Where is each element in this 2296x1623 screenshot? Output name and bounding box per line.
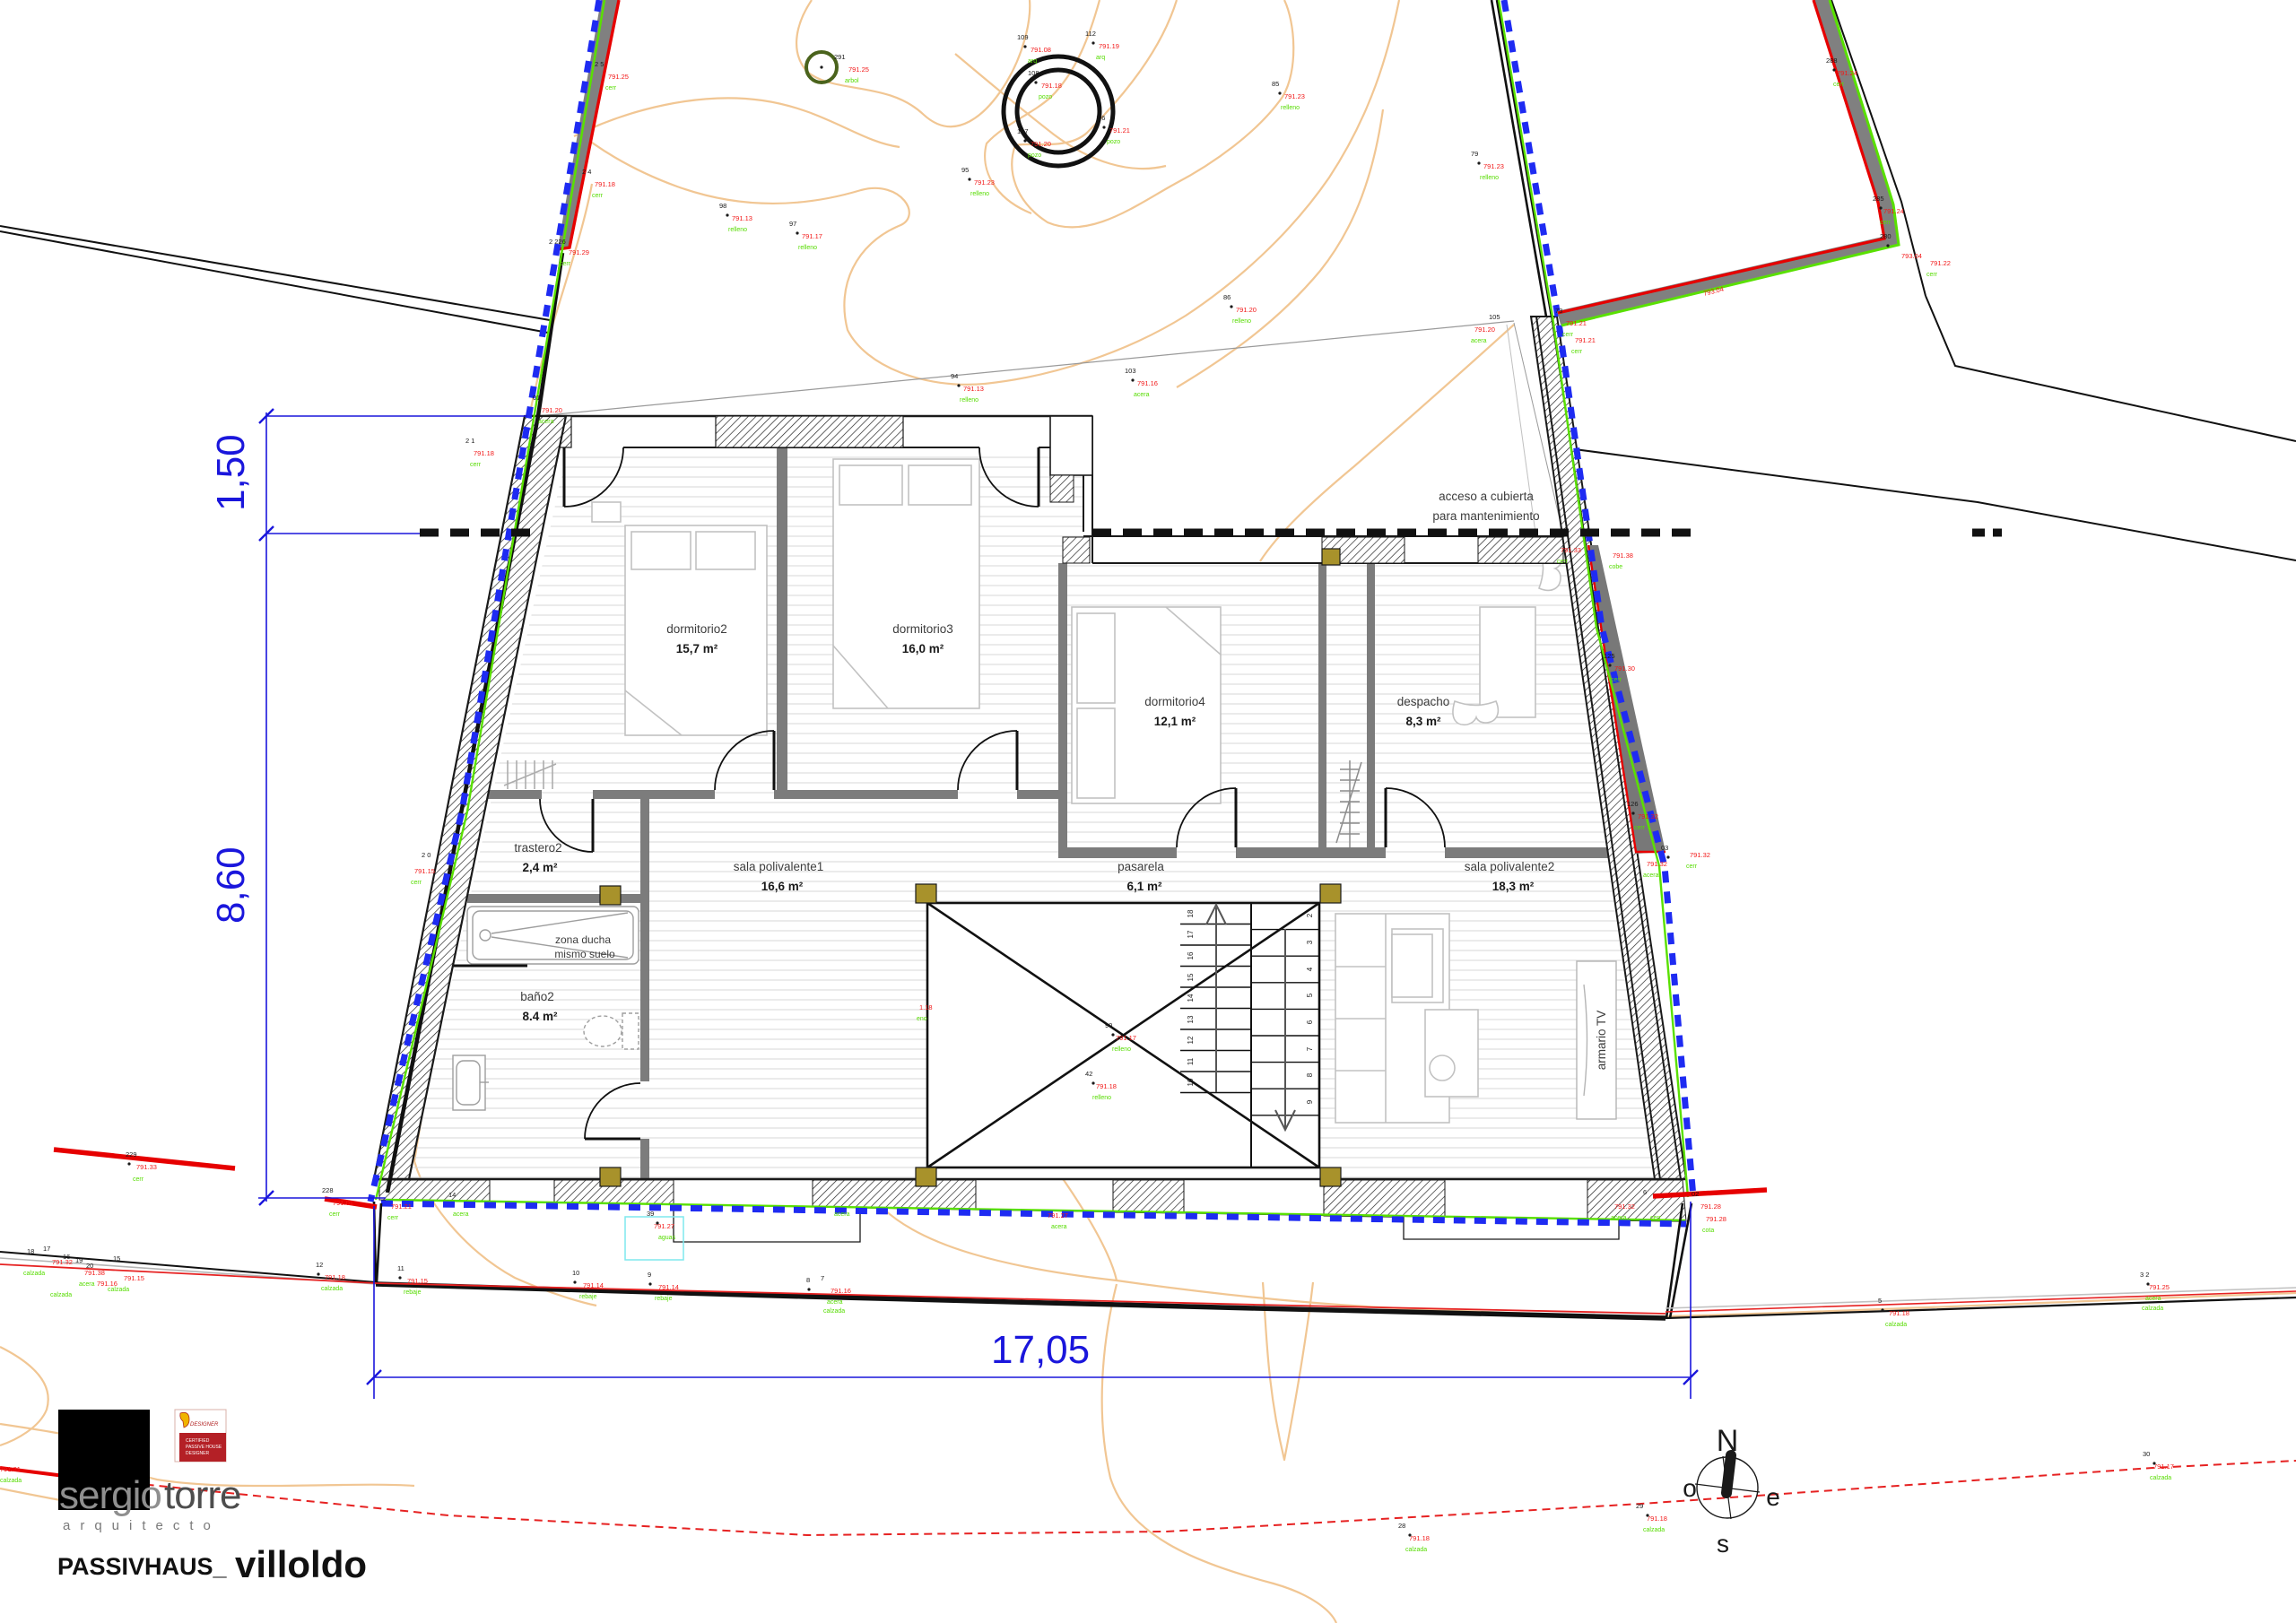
svg-text:cerr: cerr [329,1211,341,1218]
svg-text:rebaje: rebaje [404,1289,422,1296]
svg-text:8.4 m²: 8.4 m² [522,1010,558,1023]
svg-text:calzada: calzada [108,1287,129,1293]
svg-text:7: 7 [1306,1046,1314,1051]
svg-text:28: 28 [1398,1522,1405,1530]
svg-text:791.20: 791.20 [542,406,562,414]
svg-text:791.21: 791.21 [391,1202,412,1211]
svg-text:791.17: 791.17 [1116,1034,1136,1042]
svg-text:285: 285 [1873,195,1884,203]
svg-text:17,05: 17,05 [991,1328,1090,1372]
svg-text:sala polivalente1: sala polivalente1 [734,860,824,873]
svg-text:791.33: 791.33 [1561,546,1581,554]
svg-text:relleno: relleno [1480,175,1499,181]
svg-text:calzada: calzada [0,1478,22,1484]
svg-text:791.18: 791.18 [595,180,615,188]
svg-text:39: 39 [647,1210,654,1218]
svg-text:791.18: 791.18 [1041,82,1062,90]
svg-text:calzada: calzada [23,1271,45,1277]
svg-text:107: 107 [1017,127,1029,135]
svg-text:791.15: 791.15 [407,1277,428,1285]
svg-text:14: 14 [448,1191,456,1199]
svg-text:calzada: calzada [321,1286,343,1292]
svg-text:15: 15 [113,1254,120,1263]
svg-text:791.38: 791.38 [84,1269,105,1277]
svg-text:cerr: cerr [133,1176,144,1183]
svg-text:aguas: aguas [658,1235,676,1241]
svg-text:2 226: 2 226 [549,238,566,246]
svg-text:zona ducha: zona ducha [555,933,611,946]
svg-text:acera: acera [827,1299,843,1306]
svg-text:arq: arq [1028,58,1037,65]
svg-text:sergio: sergio [59,1473,161,1517]
svg-text:16,0 m²: 16,0 m² [902,642,944,655]
svg-text:2 0: 2 0 [422,851,430,859]
svg-text:791.25: 791.25 [2149,1283,2170,1291]
svg-text:791.01: 791.01 [333,1199,353,1207]
svg-text:6: 6 [1643,1188,1647,1196]
svg-text:2 4: 2 4 [582,168,591,176]
svg-text:791.22: 791.22 [1930,259,1951,267]
svg-text:armario TV: armario TV [1595,1011,1608,1071]
svg-text:280: 280 [1880,232,1892,240]
svg-text:cerr: cerr [1650,1215,1662,1221]
svg-text:cerr: cerr [1926,272,1938,278]
svg-text:791.32: 791.32 [1638,812,1658,820]
svg-text:95: 95 [961,166,969,174]
svg-text:791.21: 791.21 [1109,126,1130,135]
svg-text:6,1 m²: 6,1 m² [1126,880,1162,893]
svg-text:791.13: 791.13 [732,214,752,222]
svg-text:02: 02 [1692,1190,1699,1198]
svg-text:791.24: 791.24 [1837,69,1857,77]
svg-text:12: 12 [1187,1036,1195,1044]
svg-text:relleno: relleno [1092,1095,1111,1101]
svg-text:cerr: cerr [387,1215,399,1221]
svg-text:42: 42 [1085,1070,1092,1078]
svg-text:5: 5 [1878,1297,1882,1305]
svg-text:791.18: 791.18 [1096,1082,1117,1090]
svg-text:10: 10 [1187,1078,1195,1086]
svg-text:791.20: 791.20 [1031,140,1051,148]
svg-text:291: 291 [834,53,846,61]
svg-text:791.23: 791.23 [1284,92,1305,100]
svg-text:acera: acera [79,1281,95,1288]
svg-text:acera: acera [1471,338,1487,344]
svg-text:PASSIVHAUS_: PASSIVHAUS_ [57,1553,228,1580]
svg-text:85: 85 [1272,80,1279,88]
svg-text:cerr: cerr [1557,559,1569,565]
svg-text:791.32: 791.32 [1647,860,1667,868]
svg-text:109: 109 [1017,33,1029,41]
svg-text:126: 126 [1627,800,1639,808]
svg-text:13: 13 [1187,1015,1195,1023]
svg-text:86: 86 [1223,293,1231,301]
svg-text:calzada: calzada [1643,1527,1665,1533]
svg-text:791.08: 791.08 [1031,46,1051,54]
svg-text:791.13: 791.13 [963,385,984,393]
svg-text:6: 6 [1306,1020,1314,1024]
svg-text:acera: acera [1051,1224,1067,1230]
svg-text:791.15: 791.15 [124,1274,144,1282]
svg-text:dormitorio2: dormitorio2 [666,622,727,636]
svg-text:791.32: 791.32 [1690,851,1710,859]
svg-text:acera: acera [1643,872,1659,879]
svg-text:791.14: 791.14 [658,1283,679,1291]
svg-text:villoldo: villoldo [235,1543,367,1585]
svg-text:cerr: cerr [1571,349,1583,355]
svg-text:17: 17 [1187,930,1195,938]
svg-text:pozo: pozo [1028,152,1041,159]
svg-text:1 6: 1 6 [1096,114,1105,122]
svg-text:18,3 m²: 18,3 m² [1492,880,1535,893]
svg-text:relleno: relleno [970,191,989,197]
svg-text:cerr: cerr [1634,825,1646,831]
svg-text:229: 229 [126,1150,137,1159]
svg-text:791.18: 791.18 [1409,1534,1430,1542]
svg-text:791.19: 791.19 [1099,42,1119,50]
svg-text:15: 15 [1187,973,1195,981]
svg-text:N: N [1717,1424,1739,1458]
svg-text:90: 90 [1105,1021,1112,1029]
svg-text:2 5: 2 5 [595,60,604,68]
svg-text:791.24: 791.24 [1883,207,1904,215]
svg-text:79: 79 [1471,150,1478,158]
svg-text:s: s [1717,1530,1729,1558]
svg-text:14: 14 [1187,994,1195,1002]
svg-text:cerr: cerr [605,85,617,91]
svg-text:8,3 m²: 8,3 m² [1405,715,1441,728]
svg-text:cota: cota [1702,1228,1714,1234]
svg-text:acera: acera [453,1211,469,1218]
svg-text:cerr: cerr [1611,677,1622,683]
svg-text:DESIGNER: DESIGNER [190,1422,219,1428]
svg-text:acera: acera [1611,1215,1627,1221]
svg-text:19: 19 [75,1256,83,1264]
svg-text:16: 16 [63,1253,70,1261]
svg-text:8: 8 [1306,1072,1314,1077]
svg-text:105: 105 [1489,313,1500,321]
svg-text:12: 12 [316,1261,323,1269]
svg-text:relleno: relleno [1232,318,1251,325]
svg-text:dormitorio3: dormitorio3 [892,622,953,636]
svg-text:e: e [1766,1483,1780,1511]
svg-text:acera: acera [2145,1296,2161,1302]
svg-text:791.23: 791.23 [974,178,995,187]
svg-text:2 1: 2 1 [465,437,474,445]
svg-text:791.32: 791.32 [1614,1202,1635,1211]
svg-text:791.29: 791.29 [569,248,589,256]
svg-text:791.25: 791.25 [848,65,869,74]
svg-text:CERTIFIED: CERTIFIED [186,1438,210,1444]
svg-text:791.28: 791.28 [1700,1202,1721,1211]
svg-text:791.30: 791.30 [1614,664,1635,673]
svg-text:calzada: calzada [1405,1547,1427,1553]
svg-text:791.18: 791.18 [1889,1309,1909,1317]
svg-text:791.17: 791.17 [2153,1462,2174,1471]
svg-text:15,7 m²: 15,7 m² [676,642,718,655]
svg-text:29: 29 [1636,1502,1643,1510]
svg-text:cerr: cerr [411,880,422,886]
svg-text:calzada: calzada [50,1292,72,1298]
svg-text:relleno: relleno [798,245,817,251]
svg-text:1,50: 1,50 [209,434,253,511]
svg-text:791.18: 791.18 [474,449,494,457]
svg-text:03: 03 [1661,844,1668,852]
svg-text:acceso a cubierta: acceso a cubierta [1439,490,1534,503]
svg-text:baño2: baño2 [520,990,554,1003]
svg-text:pozo: pozo [1107,139,1120,145]
svg-text:pozo: pozo [1039,94,1052,100]
svg-text:791.16: 791.16 [1137,379,1158,387]
svg-text:228: 228 [322,1186,334,1194]
svg-text:108: 108 [1028,69,1039,77]
svg-text:97: 97 [789,220,796,228]
svg-text:trastero2: trastero2 [514,841,561,855]
svg-text:791.21: 791.21 [1566,319,1587,327]
svg-text:791.38: 791.38 [1613,551,1633,560]
svg-text:dormitorio4: dormitorio4 [1144,695,1205,708]
svg-text:8: 8 [806,1276,810,1284]
svg-text:para mantenimiento: para mantenimiento [1432,509,1539,523]
svg-text:793.04: 793.04 [1901,252,1922,260]
svg-text:8,60: 8,60 [209,846,253,924]
svg-text:791.18: 791.18 [325,1273,345,1281]
svg-text:cerr: cerr [592,193,604,199]
svg-text:cerr: cerr [1880,220,1892,226]
svg-text:cobe: cobe [1609,564,1622,570]
svg-text:relleno: relleno [1112,1046,1131,1053]
svg-text:rebaje: rebaje [579,1294,597,1300]
svg-text:94: 94 [951,372,958,380]
svg-text:791.14: 791.14 [583,1281,604,1289]
svg-text:cerr: cerr [1562,332,1574,338]
svg-text:calzada: calzada [2142,1306,2163,1312]
svg-text:cerr: cerr [560,261,571,267]
svg-text:791.33: 791.33 [136,1163,157,1171]
svg-text:cerr: cerr [470,462,482,468]
svg-text:3 2: 3 2 [2140,1271,2149,1279]
svg-text:73: 73 [1555,307,1562,315]
svg-text:cerr: cerr [1686,864,1698,870]
svg-text:791.20: 791.20 [1474,325,1495,334]
svg-text:relleno: relleno [960,397,978,404]
svg-text:calzada: calzada [823,1308,845,1315]
svg-text:791.15: 791.15 [414,867,435,875]
svg-text:9: 9 [1306,1099,1314,1104]
svg-text:112: 112 [1085,30,1096,38]
svg-text:791.18: 791.18 [1647,1515,1667,1523]
svg-text:acera: acera [834,1211,850,1218]
svg-text:16,6 m²: 16,6 m² [761,880,804,893]
svg-text:17: 17 [43,1245,50,1253]
svg-text:arq: arq [1096,55,1105,61]
svg-text:despacho: despacho [1397,695,1450,708]
svg-text:cerr: cerr [1833,82,1845,88]
svg-text:791.16: 791.16 [831,1287,851,1295]
svg-text:rebaje: rebaje [655,1296,673,1302]
svg-text:PASSIVE HOUSE: PASSIVE HOUSE [186,1445,222,1450]
svg-text:11: 11 [1187,1057,1195,1065]
svg-text:3: 3 [1306,940,1314,944]
svg-text:791.20: 791.20 [1236,306,1257,314]
svg-text:relleno: relleno [728,227,747,233]
svg-text:125: 125 [1604,652,1615,660]
svg-text:791.25: 791.25 [608,73,629,81]
svg-text:torre: torre [164,1473,240,1517]
svg-text:791.17: 791.17 [802,232,822,240]
svg-text:mismo suelo: mismo suelo [554,948,615,960]
svg-text:arquitecto: arquitecto [63,1518,221,1533]
svg-text:11: 11 [397,1264,404,1272]
svg-text:18: 18 [27,1247,34,1255]
svg-text:arbol: arbol [845,78,859,84]
svg-text:4: 4 [1306,967,1314,971]
svg-text:acera: acera [538,419,554,425]
svg-text:103: 103 [1125,367,1136,375]
svg-text:18: 18 [1187,909,1195,917]
svg-text:calzada: calzada [1885,1322,1907,1328]
svg-text:16: 16 [1187,951,1195,959]
svg-text:791.23: 791.23 [1483,162,1504,170]
svg-text:791.21: 791.21 [0,1465,21,1473]
svg-text:791.21: 791.21 [1575,336,1596,344]
svg-text:relleno: relleno [1281,105,1300,111]
svg-text:7: 7 [821,1274,824,1282]
svg-text:2,4 m²: 2,4 m² [522,861,558,874]
svg-text:791.27: 791.27 [1048,1211,1068,1219]
svg-text:20: 20 [86,1262,93,1270]
svg-text:791.28: 791.28 [1706,1215,1726,1223]
svg-text:1.18: 1.18 [919,1003,933,1011]
svg-text:9: 9 [648,1271,651,1279]
svg-text:30: 30 [2143,1450,2150,1458]
svg-text:12,1 m²: 12,1 m² [1154,715,1196,728]
svg-text:5: 5 [1306,993,1314,997]
svg-text:pasarela: pasarela [1118,860,1164,873]
svg-text:calzada: calzada [2150,1475,2171,1481]
svg-text:eno: eno [917,1016,927,1022]
svg-text:o: o [1683,1474,1697,1502]
svg-text:sala polivalente2: sala polivalente2 [1465,860,1555,873]
svg-text:288: 288 [1826,56,1838,65]
svg-text:01: 01 [533,394,540,402]
svg-text:acera: acera [1134,392,1150,398]
svg-text:10: 10 [572,1269,579,1277]
svg-text:DESIGNER: DESIGNER [186,1451,210,1456]
svg-text:2: 2 [1306,913,1314,917]
svg-text:98: 98 [719,202,726,210]
